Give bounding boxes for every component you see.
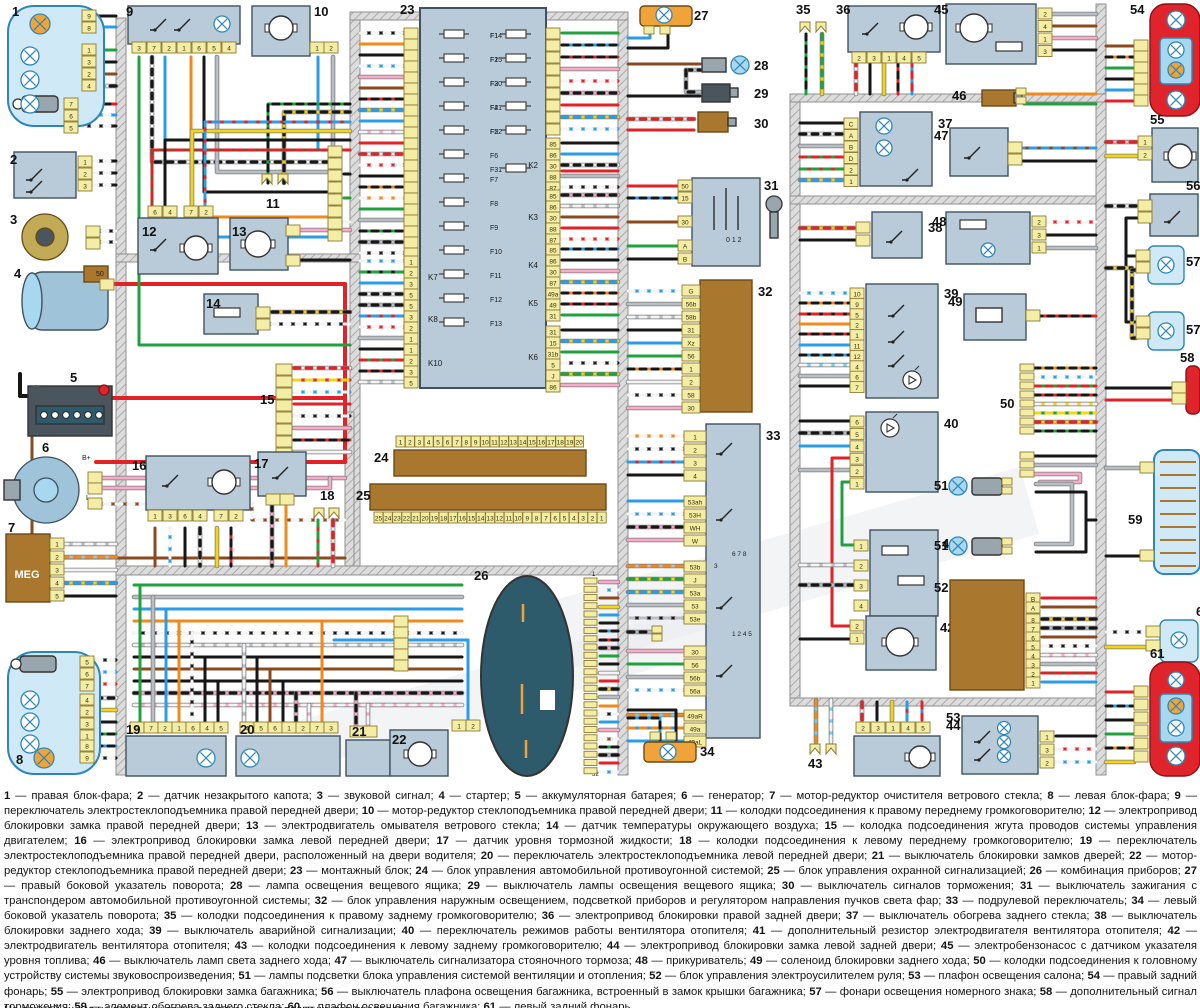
svg-text:2: 2 [409,326,413,333]
svg-text:53e: 53e [690,617,701,624]
pin [584,743,597,749]
svg-text:11: 11 [505,516,512,523]
svg-text:A: A [1031,606,1036,613]
pin [1134,712,1148,723]
pin [584,694,597,700]
svg-text:7: 7 [219,514,223,521]
pin [404,61,418,72]
component-28: 28 — лампа освещения вещевого ящика28 [702,56,768,74]
pin [1134,40,1148,51]
legend-number: 46 [93,955,106,967]
svg-text:8: 8 [535,516,539,523]
pin [404,127,418,138]
svg-text:K8: K8 [428,315,438,324]
legend-number: 1 [4,790,10,802]
component-27: 27 — правый боковой указатель поворота27 [640,6,708,34]
pin [328,206,342,217]
pin [1134,95,1148,106]
svg-text:1: 1 [153,514,157,521]
svg-text:30: 30 [681,220,689,227]
svg-text:88: 88 [549,227,557,234]
svg-text:3: 3 [85,722,89,729]
svg-text:1: 1 [859,544,863,551]
component-1: 1 — правая блок-фара9813247651 [8,4,104,133]
component-number: 9 [126,4,133,19]
svg-text:2: 2 [329,46,333,53]
legend-number: 15 [824,820,837,832]
component-4: 4 — стартер504 [14,266,114,330]
svg-text:8: 8 [464,440,468,447]
svg-text:5: 5 [409,293,413,300]
svg-text:2: 2 [857,56,861,63]
svg-text:87: 87 [549,281,557,288]
svg-text:2: 2 [83,172,87,179]
pin [1136,328,1150,339]
component-number: 10 [314,4,328,19]
pin [88,472,102,483]
svg-text:5: 5 [409,304,413,311]
svg-text:9: 9 [87,14,91,21]
svg-text:4: 4 [902,56,906,63]
svg-text:15: 15 [549,341,557,348]
svg-text:6: 6 [273,726,277,733]
pin [1172,382,1186,393]
component-18: 18 — колодки подсоединения к левому пере… [314,488,339,518]
component-52: 52 — блок управления электроусилителем р… [934,580,1040,690]
legend-number: 31 [1020,880,1033,892]
pin [856,222,870,233]
legend-number: 24 [415,865,428,877]
svg-text:4: 4 [55,581,59,588]
svg-text:17: 17 [449,516,457,523]
pin [546,76,560,87]
pin [276,412,292,423]
component-16: 16 — электропривод блокировки замка лево… [132,456,250,521]
component-24: 24 — блок управления автомобильной проти… [374,436,586,476]
pin [652,626,662,633]
pin [546,100,560,111]
component-number: 61 [1150,646,1164,661]
pin [286,255,300,266]
svg-text:5: 5 [55,594,59,601]
svg-text:1: 1 [315,46,319,53]
svg-text:22: 22 [403,516,411,523]
legend-number: 14 [546,820,559,832]
svg-text:31: 31 [549,330,557,337]
svg-text:3: 3 [1045,748,1049,755]
svg-text:5: 5 [921,726,925,733]
component-58: 58 — дополнительный сигнал торможения58 [1172,350,1200,414]
svg-text:87: 87 [549,238,557,245]
svg-text:14: 14 [477,516,485,523]
legend-number: 43 [235,940,248,952]
pin [1016,97,1026,104]
pin [584,677,597,683]
pin [404,160,418,171]
svg-text:53ah: 53ah [688,500,703,507]
component-number: 59 [1128,512,1142,527]
svg-text:1: 1 [689,367,693,374]
pin [546,52,560,63]
legend-number: 29 [467,880,480,892]
svg-text:3: 3 [83,184,87,191]
pin [584,636,597,642]
component-number: 28 [754,58,768,73]
component-number: 19 [126,722,140,737]
svg-text:2: 2 [234,514,238,521]
pin [584,751,597,757]
pin [280,494,294,505]
svg-text:1: 1 [855,333,859,340]
svg-text:12: 12 [853,354,861,361]
component-10: 10 — мотор-редуктор стеклоподъемника пра… [252,4,338,56]
legend-number: 35 [164,910,177,922]
svg-text:5: 5 [259,726,263,733]
svg-text:7: 7 [189,210,193,217]
pin [88,498,102,509]
component-32: 32 — блок управления наружным освещением… [682,280,772,413]
pin [584,661,597,667]
pin [328,194,342,205]
component-29: 29 — выключатель лампы освещения вещевог… [702,84,768,102]
pin [1020,382,1034,389]
component-61: 61 — левый задний фонарь61 [1134,646,1200,776]
component-51: 51 — лампы подсветки блока управления си… [934,537,1012,555]
component-15: 15 — колодка подсоединения жгута проводо… [260,364,292,459]
svg-text:56b: 56b [686,302,697,309]
svg-text:1: 1 [1031,681,1035,688]
svg-text:7: 7 [85,684,89,691]
pin [1020,400,1034,407]
svg-text:0 1 2: 0 1 2 [726,237,742,244]
svg-text:5: 5 [563,516,567,523]
pin [666,732,676,740]
component-54: 54 — правый задний фонарь54 [1130,2,1200,116]
svg-text:1: 1 [177,726,181,733]
pin [256,307,270,318]
pin [276,376,292,387]
legend-text: 1 — правая блок-фара; 2 — датчик незакры… [4,789,1197,1008]
svg-text:30: 30 [687,406,695,413]
component-number: 5 [70,370,77,385]
component-56: 56 — выключатель плафона освещения багаж… [1138,178,1200,236]
svg-text:13: 13 [486,516,494,523]
pin [328,218,342,229]
svg-text:8: 8 [85,744,89,751]
svg-text:1: 1 [83,160,87,167]
svg-text:1: 1 [1143,140,1147,147]
pin [584,619,597,625]
svg-text:1: 1 [85,734,89,741]
svg-text:2: 2 [167,46,171,53]
svg-text:1: 1 [855,482,859,489]
pin [584,718,597,724]
svg-text:WH: WH [690,526,701,533]
pin [584,735,597,741]
svg-text:F14: F14 [490,33,502,40]
component-7: 7 — мотор-редуктор очистителя ветрового … [6,520,64,602]
component-number: 13 [232,224,246,239]
svg-text:2: 2 [855,624,859,631]
pin [404,237,418,248]
svg-text:30: 30 [549,164,557,171]
svg-text:4: 4 [227,46,231,53]
svg-text:3: 3 [409,282,413,289]
component-number: 27 [694,8,708,23]
component-number: 56 [1186,178,1200,193]
pin [404,149,418,160]
legend-number: 20 [481,850,494,862]
svg-text:6: 6 [446,440,450,447]
legend-number: 55 [51,986,64,998]
svg-text:3: 3 [55,568,59,575]
component-number: 15 [260,392,274,407]
pin [404,171,418,182]
svg-text:86: 86 [549,153,557,160]
svg-text:5: 5 [855,312,859,319]
pin [1140,462,1154,473]
pin [584,768,597,774]
svg-text:4: 4 [693,474,697,481]
svg-text:56: 56 [687,354,695,361]
pin [1172,393,1186,404]
pin [1138,212,1152,223]
legend-number: 40 [402,925,415,937]
svg-text:1: 1 [693,435,697,442]
svg-text:2: 2 [849,168,853,175]
pin [404,28,418,39]
pin [404,193,418,204]
pin [1134,725,1148,736]
pin [584,603,597,609]
connector-block [328,146,408,671]
svg-text:1: 1 [891,726,895,733]
svg-text:10: 10 [514,516,522,523]
legend-number: 53 [908,970,921,982]
pin [328,182,342,193]
pin [1002,478,1012,485]
svg-text:49a: 49a [548,292,559,299]
svg-text:85: 85 [549,248,557,255]
legend-number: 50 [973,955,986,967]
svg-text:A: A [849,133,854,140]
component-number: 48 [932,214,946,229]
svg-text:15: 15 [681,196,689,203]
svg-text:1: 1 [600,516,604,523]
svg-text:9: 9 [855,302,859,309]
pin [1008,142,1022,153]
svg-text:21: 21 [412,516,420,523]
svg-text:1 2 4 5: 1 2 4 5 [732,631,752,638]
pin [1134,738,1148,749]
svg-text:3: 3 [87,60,91,67]
svg-text:6: 6 [855,420,859,427]
pin [1020,409,1034,416]
pin [1026,310,1040,321]
svg-text:7: 7 [855,385,859,392]
component-number: 53 [946,710,960,725]
svg-text:3: 3 [168,514,172,521]
component-45: 45 — электробензонасос с датчиком указат… [934,2,1052,64]
svg-text:86: 86 [549,205,557,212]
svg-text:15: 15 [528,440,536,447]
svg-text:2: 2 [409,359,413,366]
pin [1002,487,1012,494]
svg-text:24: 24 [384,516,392,523]
svg-text:K5: K5 [528,299,538,308]
component-number: 57 [1186,254,1200,269]
legend-number: 51 [238,970,251,982]
component-number: 7 [8,520,15,535]
pin [584,586,597,592]
svg-text:2: 2 [1037,220,1041,227]
pin [1134,751,1148,762]
svg-text:J: J [551,374,554,381]
svg-text:2: 2 [204,210,208,217]
svg-text:F8: F8 [490,201,498,208]
svg-text:58b: 58b [686,315,697,322]
pin [100,279,114,290]
svg-text:2: 2 [855,323,859,330]
component-3: 3 — звуковой сигнал3 [10,212,100,260]
legend-number: 42 [1168,925,1181,937]
pin [404,116,418,127]
svg-text:16: 16 [538,440,546,447]
svg-text:B: B [849,145,853,152]
legend-number: 52 [649,970,662,982]
svg-text:30: 30 [549,216,557,223]
svg-text:K10: K10 [428,359,443,368]
component-number: 55 [1150,112,1164,127]
component-23: 23 — монтажный блокF1F2F3F4F5F6F7F8F9F10… [400,2,560,392]
svg-text:6: 6 [85,672,89,679]
pin [584,578,597,584]
legend-number: 44 [607,940,620,952]
svg-text:56b: 56b [690,676,701,683]
svg-text:7: 7 [455,440,459,447]
svg-text:7: 7 [69,102,73,109]
svg-text:4: 4 [87,84,91,91]
svg-text:31b: 31b [548,352,559,359]
svg-text:16: 16 [459,516,467,523]
pin [328,230,342,241]
pin [584,710,597,716]
svg-text:B: B [683,257,687,264]
svg-text:30: 30 [691,650,699,657]
svg-text:F12: F12 [490,297,502,304]
svg-text:2: 2 [55,555,59,562]
legend-number: 37 [846,910,859,922]
svg-text:6: 6 [553,516,557,523]
component-5: 5 — аккумуляторная батарея5 [28,370,112,436]
component-number: 60 [1196,604,1200,619]
svg-text:F7: F7 [490,177,498,184]
component-number: 32 [758,284,772,299]
legend-number: 18 [679,835,692,847]
svg-text:D: D [849,156,854,163]
pin [584,685,597,691]
svg-text:2: 2 [693,448,697,455]
svg-text:3: 3 [876,726,880,733]
pin [328,170,342,181]
legend-number: 2 [137,790,143,802]
svg-text:4: 4 [572,516,576,523]
pin [856,235,870,246]
pin [404,83,418,94]
legend-number: 6 [681,790,687,802]
component-47: 47 — выключатель сигнализатора стояночно… [934,128,1022,176]
component-30: 30 — выключатель сигналов торможения30 [698,112,768,132]
svg-text:2: 2 [471,724,475,731]
pin [1134,73,1148,84]
svg-text:1: 1 [1037,246,1041,253]
svg-text:5: 5 [219,726,223,733]
pin [660,26,670,34]
svg-text:MEG: MEG [14,569,39,581]
svg-text:K7: K7 [428,273,438,282]
component-number: 14 [206,296,221,311]
pin [1140,550,1154,561]
svg-text:3: 3 [855,457,859,464]
svg-text:3: 3 [409,315,413,322]
pin [256,319,270,330]
svg-text:4: 4 [85,698,89,705]
svg-text:F9: F9 [490,225,498,232]
component-number: 3 [10,212,17,227]
legend-number: 28 [230,880,243,892]
svg-text:2: 2 [408,440,412,447]
component-number: 17 [254,456,268,471]
svg-text:88: 88 [549,175,557,182]
legend-number: 21 [872,850,885,862]
svg-text:31: 31 [687,328,695,335]
pin [404,204,418,215]
pin [1020,452,1034,459]
svg-text:4: 4 [906,726,910,733]
svg-text:12: 12 [496,516,504,523]
svg-text:6: 6 [191,726,195,733]
pin [394,660,408,671]
pin [404,94,418,105]
legend-number: 41 [753,925,766,937]
svg-text:5: 5 [551,363,555,370]
pin [328,158,342,169]
component-number: 34 [700,744,715,759]
pin [1020,470,1034,477]
svg-text:4: 4 [859,604,863,611]
pin [1134,51,1148,62]
svg-text:53: 53 [691,604,699,611]
component-number: 45 [934,2,948,17]
pin [546,40,560,51]
component-6: 6 — генераторB+L6 [4,440,102,523]
svg-text:7: 7 [149,726,153,733]
svg-text:5: 5 [409,381,413,388]
component-number: 52 [934,580,948,595]
legend-number: 49 [750,955,763,967]
pin [404,105,418,116]
component-36: 36 — электропривод блокировки правой зад… [836,2,940,63]
pin [1020,461,1034,468]
svg-text:J: J [693,578,696,585]
svg-text:1: 1 [55,542,59,549]
svg-text:3: 3 [409,370,413,377]
component-number: 31 [764,178,778,193]
pin [1020,418,1034,425]
pin [1020,364,1034,371]
svg-text:5: 5 [436,440,440,447]
svg-text:2: 2 [1043,12,1047,19]
